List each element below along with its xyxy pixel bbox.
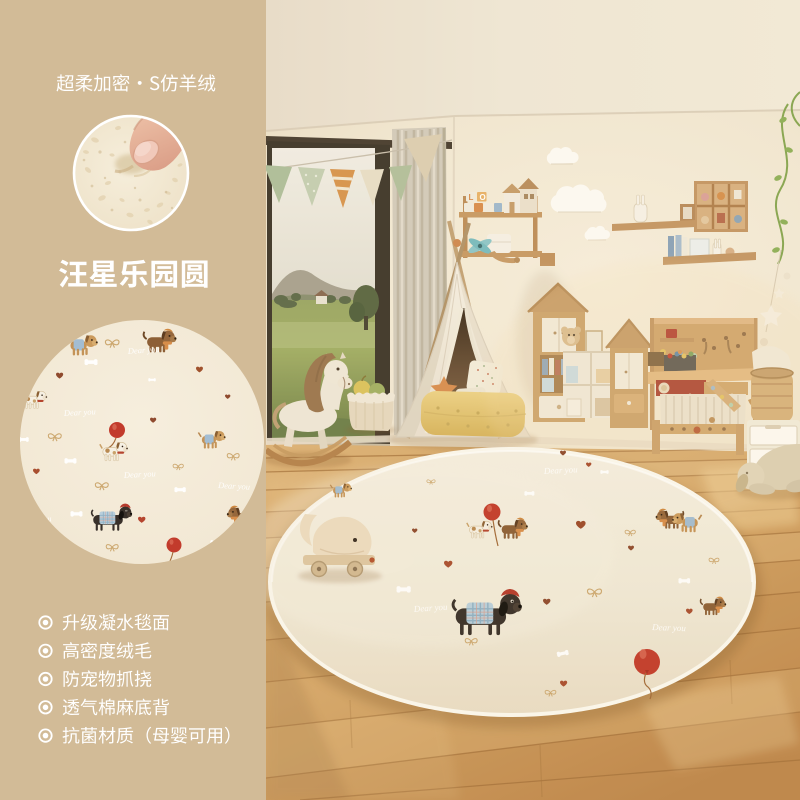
svg-text:Dear you: Dear you	[123, 468, 156, 480]
svg-text:Dear you: Dear you	[63, 406, 96, 418]
svg-text:Dear you: Dear you	[217, 480, 250, 492]
